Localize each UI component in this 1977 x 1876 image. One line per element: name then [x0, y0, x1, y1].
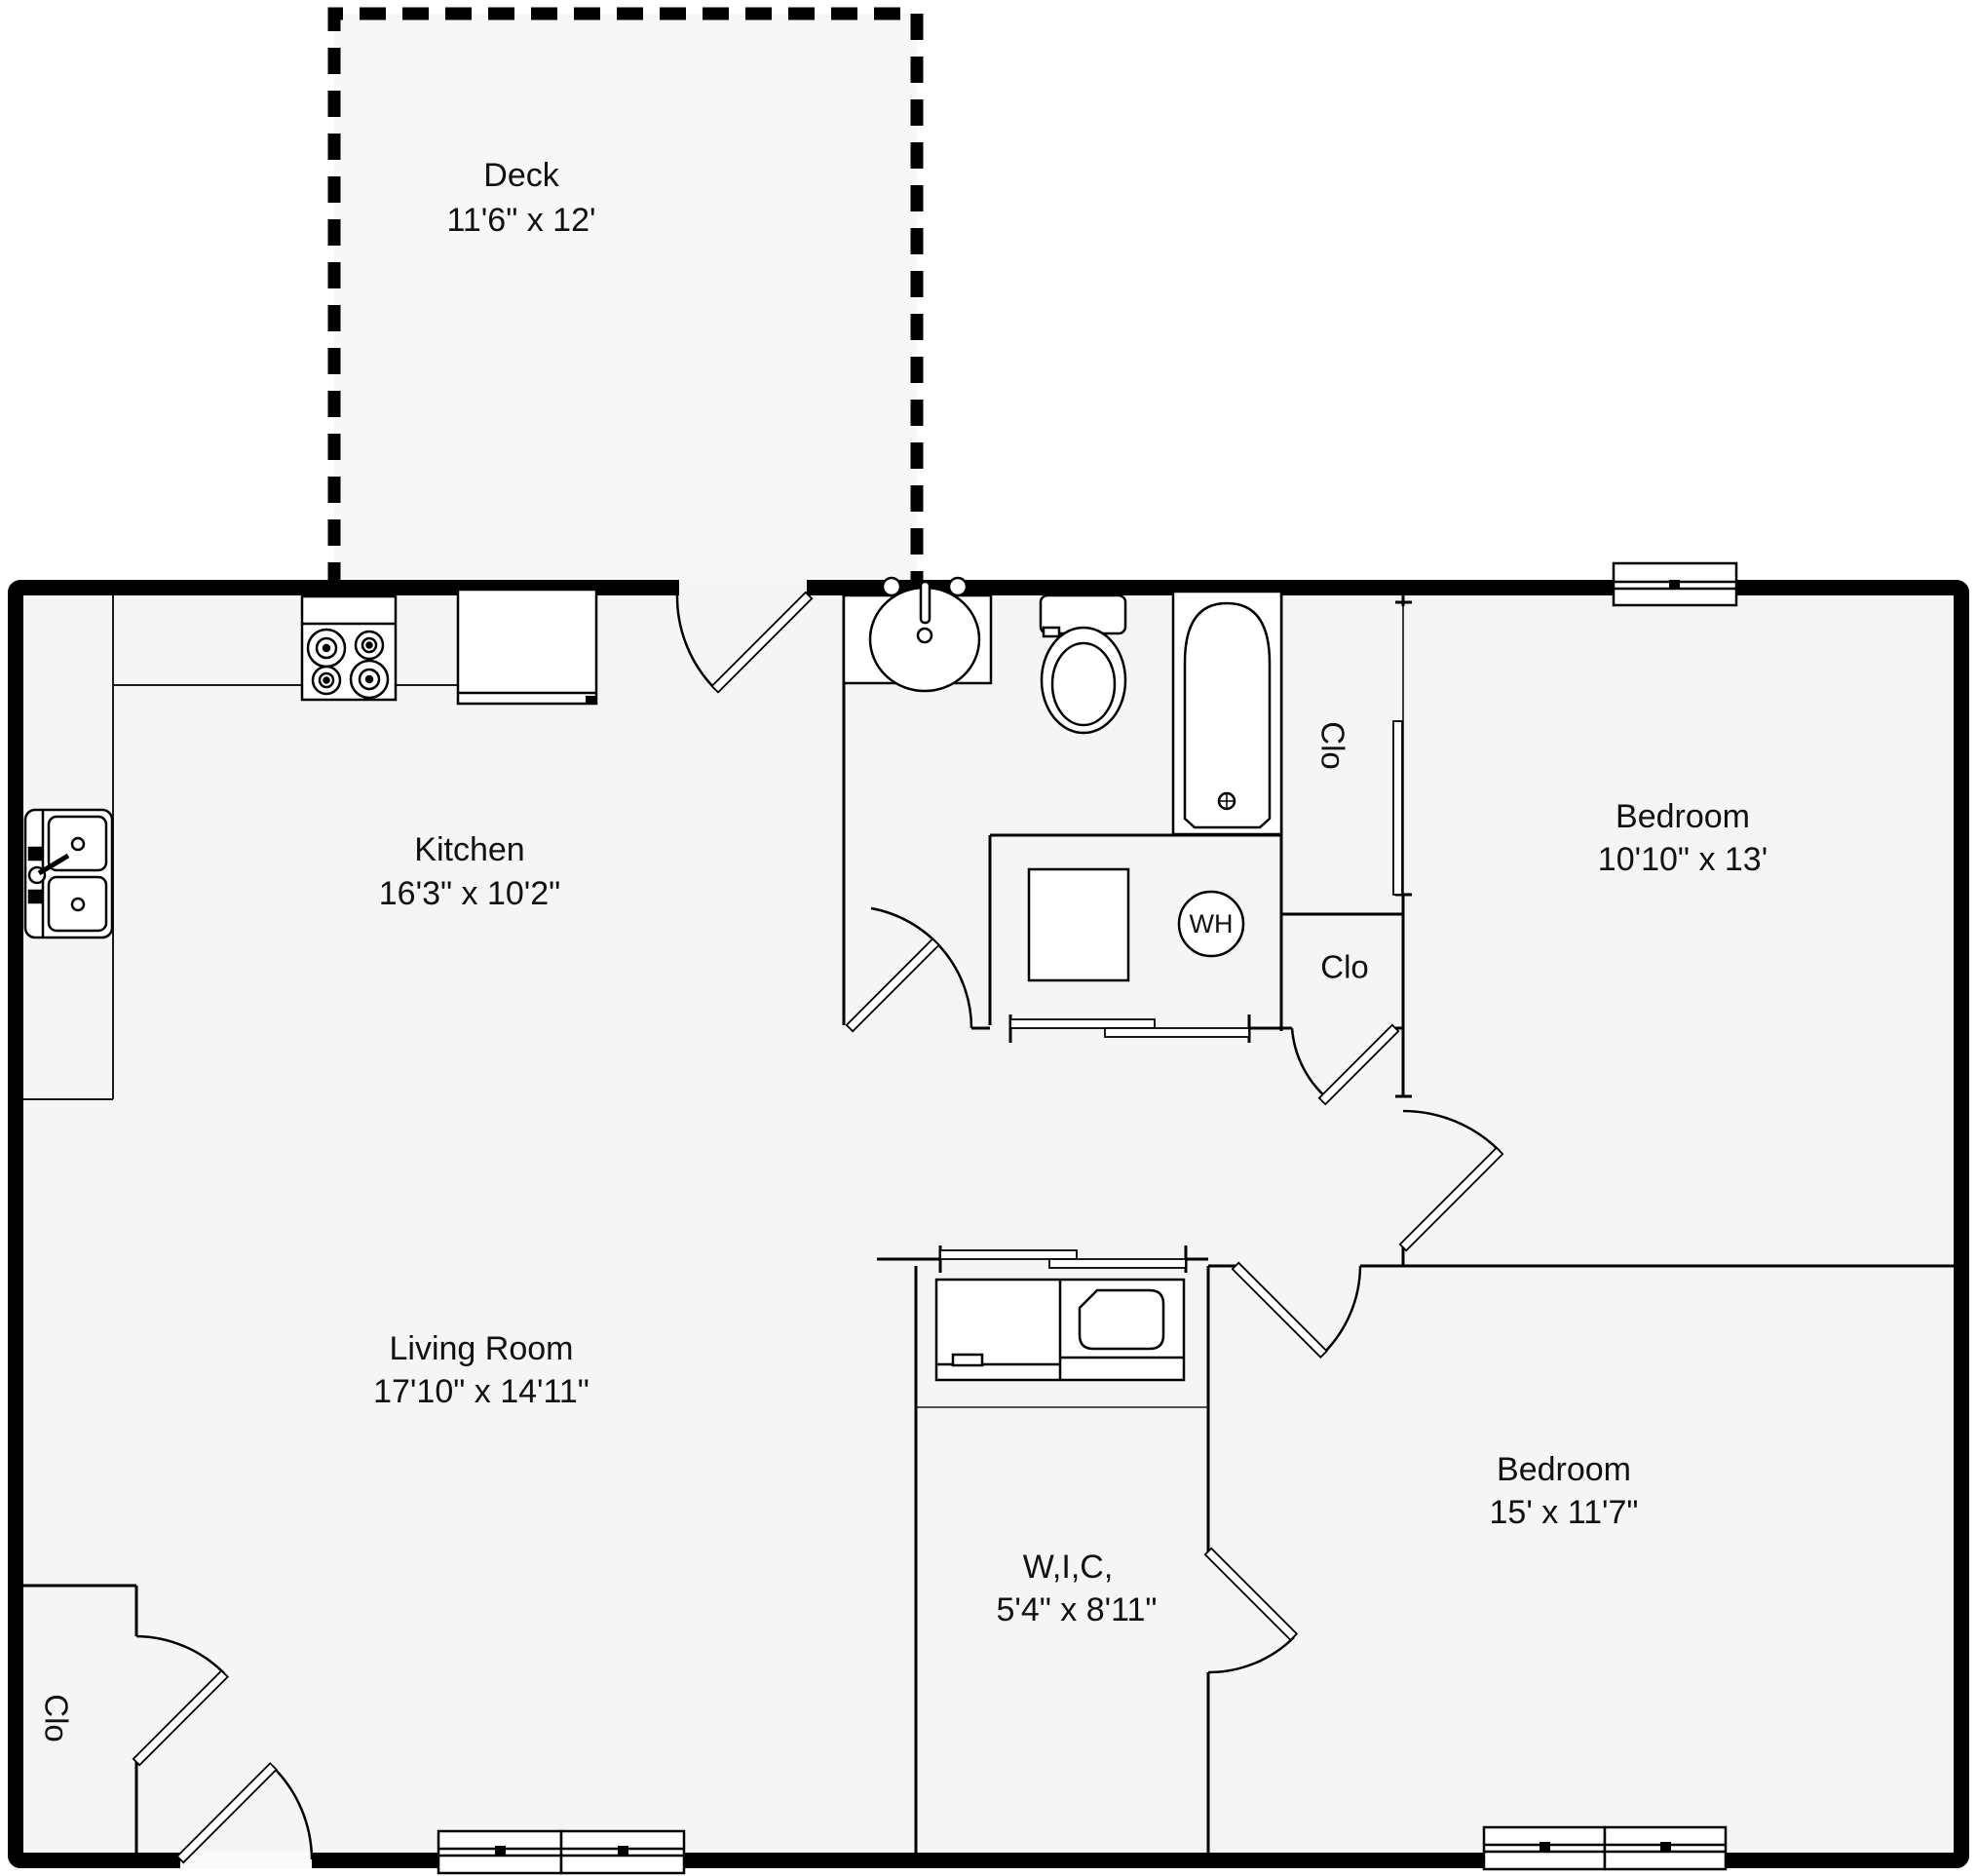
living-room-label: Living Room: [390, 1330, 574, 1367]
window-top-right: [1614, 563, 1736, 605]
cabinet-handle: [586, 696, 595, 704]
closet-label-hall: Clo: [1320, 949, 1369, 985]
bath-sink-drain: [918, 629, 931, 642]
water-heater: WH: [1179, 892, 1243, 956]
kitchen-sink: [25, 810, 112, 938]
closet-label-bedroom: Clo: [1315, 721, 1351, 770]
window-bottom-right-pair: [1484, 1827, 1726, 1869]
detergent-drawer: [953, 1355, 982, 1365]
floor-plan-page: WH: [0, 0, 1977, 1876]
exterior-walls: [16, 588, 1961, 1860]
bedroom-bottom-dims: 15' x 11'7": [1490, 1494, 1639, 1531]
kitchen-cabinet: [458, 590, 596, 704]
washer-dryer-pair: [936, 1280, 1184, 1380]
water-heater-label: WH: [1190, 909, 1234, 938]
kitchen-dims: 16'3" x 10'2": [379, 875, 560, 912]
toilet-seat: [1052, 643, 1115, 725]
burner-top-right: [356, 632, 383, 659]
bathtub: [1173, 592, 1281, 834]
front-door-opening: [180, 1852, 312, 1869]
window-tick: [1669, 580, 1680, 589]
closet-label-entry: Clo: [39, 1694, 75, 1742]
deck-label: Deck: [483, 157, 559, 194]
burner-top-left: [308, 630, 345, 667]
deck-area: [334, 14, 917, 589]
dryer-door: [1080, 1290, 1163, 1349]
floor-plan: WH: [0, 0, 1977, 1876]
bedroom-top-dims: 10'10" x 13': [1598, 841, 1768, 878]
slider-panel-clo1: [1393, 721, 1402, 895]
sink-faucet-handle: [29, 848, 41, 860]
deck-dims: 11'6" x 12': [447, 202, 596, 239]
washer-unit: [1029, 869, 1128, 980]
window-tick: [1540, 1842, 1550, 1851]
bath-faucet-handle: [949, 578, 967, 595]
burner-bottom-right: [351, 661, 388, 698]
sink-drain: [72, 838, 84, 850]
sink-faucet-handle: [29, 891, 41, 902]
burner-bottom-left: [313, 667, 340, 694]
sink-drain: [72, 899, 84, 910]
stove: [302, 596, 396, 700]
living-room-dims: 17'10" x 14'11": [373, 1373, 589, 1410]
wic-label: W,I,C,: [1023, 1549, 1114, 1586]
window-tick: [1660, 1842, 1671, 1851]
bath-faucet-handle: [883, 578, 900, 595]
toilet-flush: [1044, 628, 1059, 636]
deck-floor: [334, 14, 917, 585]
wic-dims: 5'4" x 8'11": [996, 1591, 1157, 1628]
window-tick: [618, 1846, 628, 1855]
bath-faucet-spout: [921, 582, 930, 623]
bedroom-top-label: Bedroom: [1616, 798, 1750, 835]
kitchen-label: Kitchen: [414, 831, 524, 868]
bedroom-bottom-label: Bedroom: [1497, 1451, 1631, 1488]
window-bottom-left-pair: [438, 1831, 684, 1873]
toilet: [1041, 595, 1125, 733]
bath-vanity: [844, 578, 991, 691]
deck-door-opening: [679, 579, 807, 596]
window-tick: [495, 1846, 506, 1855]
